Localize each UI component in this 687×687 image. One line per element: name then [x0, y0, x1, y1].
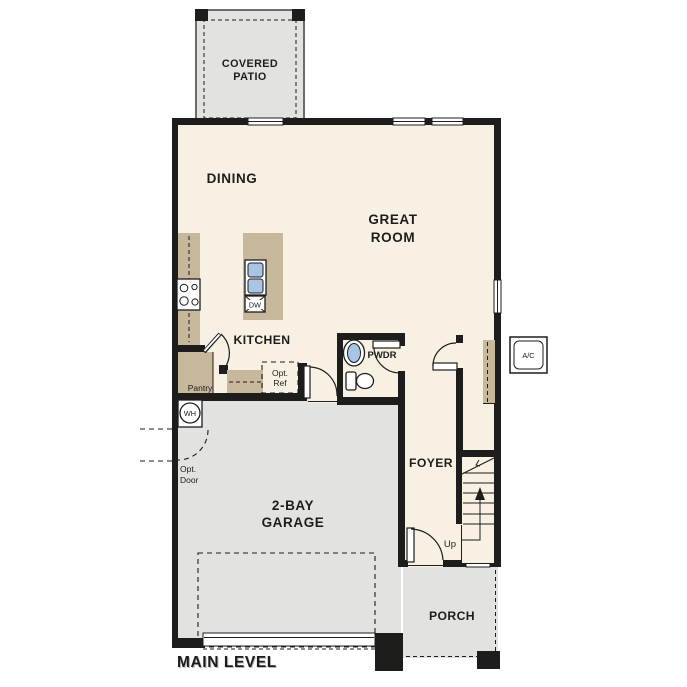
sink-basin-1 — [248, 263, 263, 277]
wall-left — [172, 118, 178, 648]
garage-label-2: GARAGE — [262, 515, 325, 530]
kitchen-label: KITCHEN — [234, 333, 291, 347]
wall-powder-top — [337, 333, 405, 340]
covered-patio-label-1: COVERED — [222, 58, 278, 70]
powder-door-leaf — [373, 341, 400, 348]
dining-label: DINING — [207, 171, 258, 186]
opt-door-label-2: Door — [180, 475, 199, 485]
patio-post-left — [195, 9, 208, 21]
opt-door-label-1: Opt. — [180, 464, 196, 474]
wall-garage-top-right — [337, 397, 403, 405]
garage-door-leaf — [304, 366, 310, 398]
foyer-label: FOYER — [409, 456, 453, 470]
closet-door-leaf — [433, 363, 457, 370]
toilet-tank-icon — [346, 372, 356, 390]
opt-ref-label-2: Ref — [273, 378, 287, 388]
garage-overhead-door — [203, 633, 375, 646]
water-heater-label: WH — [184, 409, 196, 418]
pantry-label: Pantry — [188, 383, 213, 393]
range-icon — [177, 279, 200, 310]
dishwasher-label: DW — [249, 301, 261, 310]
powder-label: PWDR — [367, 350, 396, 361]
stairs-up-label: Up — [444, 539, 456, 550]
garage-corner-post — [375, 633, 403, 671]
porch-post — [477, 651, 500, 669]
wall-garage-east — [398, 403, 405, 563]
porch-label: PORCH — [429, 609, 475, 623]
covered-patio-label-2: PATIO — [233, 71, 266, 83]
wall-closet-west — [456, 368, 463, 455]
toilet-bowl-icon — [357, 374, 374, 389]
great-room-label-1: GREAT — [368, 212, 417, 227]
wall-right — [494, 118, 501, 567]
patio-post-right — [292, 9, 305, 21]
sink-basin-2 — [248, 279, 263, 293]
opt-ref-label-1: Opt. — [272, 368, 288, 378]
wall-counter-end — [173, 345, 205, 352]
wall-powder-left — [337, 333, 343, 404]
garage-label-1: 2-BAY — [272, 498, 314, 513]
front-door-leaf — [407, 528, 414, 562]
wall-stairs-left — [456, 457, 462, 524]
closet-shelf — [483, 340, 495, 403]
powder-sink-basin — [348, 344, 361, 363]
wall-stairs-top — [456, 450, 501, 457]
plan-title: MAIN LEVEL — [177, 654, 277, 671]
wall-closet-stub — [456, 335, 463, 343]
great-room-label-2: ROOM — [371, 230, 415, 245]
floor-plan: COVERED PATIO — [0, 0, 687, 687]
ac-unit-label: A/C — [522, 351, 534, 360]
wall-pantry-corner — [219, 365, 228, 374]
ac-unit: A/C — [510, 337, 547, 373]
